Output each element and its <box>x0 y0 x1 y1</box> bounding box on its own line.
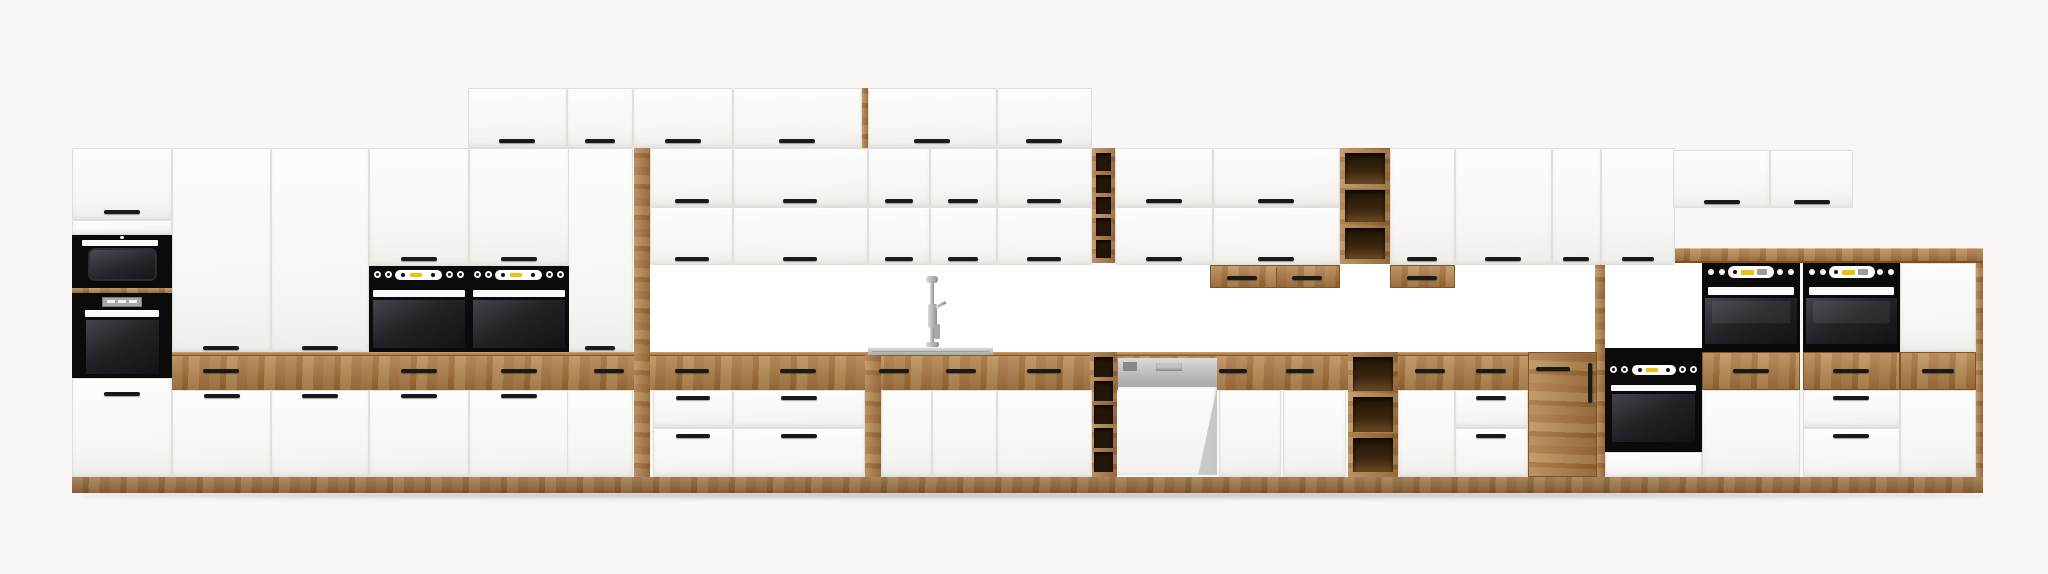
wine-rack-lower <box>1090 352 1117 477</box>
sink-base-door <box>881 390 932 477</box>
door-handle <box>1407 257 1437 261</box>
door-handle <box>585 139 615 143</box>
door-handle <box>302 346 338 350</box>
tower-filler <box>72 220 172 235</box>
door-handle <box>1794 200 1830 204</box>
microwave-latch <box>120 236 124 239</box>
oven-glass <box>372 299 466 349</box>
faucet-spray <box>934 324 940 339</box>
oven-knob <box>557 271 564 278</box>
door-handle <box>401 257 437 261</box>
clock-display <box>1757 269 1767 275</box>
faucet-neck <box>930 282 934 306</box>
oven-button <box>1777 269 1783 275</box>
base-door <box>172 390 271 477</box>
open-shelf-compartment <box>1353 397 1393 431</box>
door-handle <box>499 139 535 143</box>
oven-knob <box>1610 366 1617 373</box>
oven-display <box>102 297 142 307</box>
indicator <box>1834 270 1838 274</box>
door-handle <box>594 369 624 373</box>
plinth <box>72 477 1983 493</box>
wine-rack-cubby <box>1094 381 1113 401</box>
door-handle <box>585 346 615 350</box>
oven-glass <box>1704 297 1798 345</box>
base-door <box>369 390 469 477</box>
door-handle <box>948 257 978 261</box>
door-handle <box>1588 363 1592 403</box>
wine-rack-cubby <box>1096 197 1111 215</box>
door-handle <box>1415 369 1445 373</box>
door-handle <box>1027 257 1061 261</box>
sink-base-door <box>932 390 997 477</box>
door-handle <box>885 257 913 261</box>
door-handle <box>302 394 338 398</box>
open-shelf-compartment <box>1345 153 1385 184</box>
door-handle <box>1733 369 1769 373</box>
door-handle <box>1622 257 1654 261</box>
wine-rack-upper <box>1092 148 1115 263</box>
display-segment <box>118 300 126 303</box>
indicator <box>401 273 405 277</box>
door-handle <box>781 434 817 438</box>
open-shelf-compartment <box>1345 228 1385 259</box>
oven-glass <box>472 299 566 349</box>
door-handle <box>1476 396 1506 400</box>
wine-rack-cubby <box>1096 153 1111 171</box>
door-handle <box>1476 434 1506 438</box>
oven-control-display <box>1829 266 1875 278</box>
open-shelf-compartment <box>1353 357 1393 391</box>
dishwasher-display <box>1123 362 1137 371</box>
glass-reflection <box>1712 301 1790 323</box>
microwave-window <box>88 248 157 281</box>
door-handle <box>879 369 909 373</box>
wall-tall-door <box>1552 148 1601 265</box>
door-handle <box>501 394 537 398</box>
tall-pantry-door <box>567 148 633 352</box>
indicator <box>501 273 505 277</box>
clock-display <box>1858 269 1868 275</box>
tall-pantry-door <box>271 148 369 352</box>
oven-knob <box>374 271 381 278</box>
raised-built-in-oven-left <box>1702 263 1800 352</box>
filler-front <box>1900 263 1976 352</box>
raised-niche-back <box>1605 263 1702 348</box>
drawer-gap <box>1276 267 1277 288</box>
timer-display <box>1741 270 1754 275</box>
door-handle <box>675 369 709 373</box>
built-under-oven <box>1605 348 1702 477</box>
base-door <box>1219 390 1281 477</box>
floor-shadow <box>78 492 1986 498</box>
wall-tall-door <box>1455 148 1552 265</box>
door-handle <box>1833 396 1869 400</box>
oven-lower-filler <box>1605 452 1702 477</box>
door-handle <box>1027 199 1061 203</box>
kitchen-faucet <box>922 276 946 347</box>
side-panel-right <box>1976 263 1983 477</box>
oven-knob <box>457 271 464 278</box>
built-in-oven-right <box>469 266 569 352</box>
door-handle <box>665 139 701 143</box>
wall-tall-door <box>1390 148 1455 265</box>
door-handle <box>914 139 950 143</box>
base-door <box>997 390 1092 477</box>
tower-built-in-oven <box>72 293 172 378</box>
inset-sink-deck <box>868 347 993 355</box>
oven-knob <box>1679 366 1686 373</box>
wine-rack-cubby <box>1096 175 1111 193</box>
open-shelf-lower <box>1348 352 1398 477</box>
door-handle <box>885 199 913 203</box>
oven-knob <box>474 271 481 278</box>
timer-display <box>1646 368 1658 372</box>
base-door <box>567 390 633 477</box>
door-handle <box>1292 276 1322 280</box>
wine-rack-cubby <box>1094 452 1113 472</box>
wine-rack-cubby <box>1094 357 1113 377</box>
timer-display <box>1842 270 1855 275</box>
oven-control-panel <box>1605 362 1702 377</box>
oven-knob <box>546 271 553 278</box>
oven-handle-bar <box>85 310 159 317</box>
base-door <box>469 390 569 477</box>
open-shelf-upper <box>1340 148 1390 264</box>
door-handle <box>1258 199 1294 203</box>
open-shelf-compartment <box>1353 438 1393 472</box>
microwave-door-bar <box>82 240 158 246</box>
oven-top-strip <box>1605 348 1702 362</box>
door-handle <box>204 394 240 398</box>
wall-tall-door <box>1601 148 1675 265</box>
tall-pantry-door <box>172 148 271 352</box>
timer-display <box>410 273 422 277</box>
oven-handle-bar <box>1708 287 1794 295</box>
door-handle <box>1407 276 1437 280</box>
door-handle <box>780 369 816 373</box>
glass-reflection <box>1813 301 1890 323</box>
door-handle <box>1258 257 1294 261</box>
door-handle <box>1146 199 1182 203</box>
door-handle <box>501 257 537 261</box>
oven-button <box>1809 269 1815 275</box>
wine-rack-cubby <box>1096 218 1111 236</box>
oven-housing-upper-door <box>469 148 569 266</box>
oven-knob <box>446 271 453 278</box>
door-handle <box>783 199 817 203</box>
door-handle <box>1833 434 1869 438</box>
door-handle <box>501 369 537 373</box>
oven-base-strip <box>1702 345 1800 352</box>
base-door <box>1283 390 1346 477</box>
oven-button <box>1888 269 1894 275</box>
door-handle <box>104 210 140 214</box>
door-handle <box>1704 200 1740 204</box>
kitchen-product-render <box>0 0 2048 574</box>
indicator <box>1638 368 1642 372</box>
sink-basin-line <box>872 351 989 352</box>
base-door <box>1398 390 1455 477</box>
door-handle <box>676 434 710 438</box>
base-door <box>1702 390 1800 477</box>
oven-button <box>1708 269 1714 275</box>
indicator <box>431 273 435 277</box>
display-segment <box>107 300 115 303</box>
door-handle <box>1219 369 1247 373</box>
door-handle <box>401 369 437 373</box>
door-handle <box>1563 257 1589 261</box>
door-handle <box>203 369 239 373</box>
dishwasher-control-band <box>1118 358 1217 387</box>
open-shelf-compartment <box>1345 190 1385 221</box>
oven-control-display <box>495 270 542 280</box>
door-handle <box>401 394 437 398</box>
oven-glass <box>1611 393 1696 443</box>
door-handle <box>946 369 976 373</box>
dishwasher-recessed-handle <box>1156 363 1182 371</box>
oven-knob <box>385 271 392 278</box>
oven-handle-bar <box>1611 385 1696 391</box>
faucet-lever <box>935 301 946 309</box>
door-handle <box>104 392 140 396</box>
oven-button <box>1788 269 1794 275</box>
door-handle <box>1286 369 1314 373</box>
oven-button <box>1877 269 1883 275</box>
oven-knob <box>1621 366 1628 373</box>
door-handle <box>781 396 817 400</box>
oven-knob <box>485 271 492 278</box>
door-handle <box>676 396 710 400</box>
faucet-base <box>926 342 939 347</box>
door-handle <box>948 199 978 203</box>
oven-handle-bar <box>373 290 465 297</box>
door-handle <box>1026 139 1062 143</box>
oven-button <box>1719 269 1725 275</box>
wine-rack-cubby <box>1096 240 1111 258</box>
door-handle <box>675 257 709 261</box>
door-handle <box>779 139 815 143</box>
dishwasher-semi-integrated <box>1118 358 1217 475</box>
door-handle <box>203 346 239 350</box>
oven-handle-bar <box>473 290 565 297</box>
indicator <box>1733 270 1737 274</box>
door-handle <box>1146 257 1182 261</box>
wine-rack-cubby <box>1094 405 1113 425</box>
door-handle <box>1476 369 1506 373</box>
door-handle <box>1485 257 1521 261</box>
indicator <box>1666 368 1670 372</box>
oven-control-display <box>395 270 442 280</box>
wine-rack-cubby <box>1094 428 1113 448</box>
indicator <box>531 273 535 277</box>
oven-control-display <box>1728 266 1774 278</box>
door-handle <box>1027 369 1061 373</box>
door-handle <box>783 257 817 261</box>
base-door <box>271 390 369 477</box>
door-handle <box>1922 369 1954 373</box>
door-handle <box>1227 276 1257 280</box>
oven-glass <box>85 319 160 375</box>
built-in-microwave <box>72 235 172 288</box>
door-handle <box>1536 367 1570 371</box>
base-door <box>1900 390 1976 477</box>
oven-control-display <box>1632 365 1676 375</box>
oven-base-strip <box>1803 345 1900 352</box>
oven-handle-bar <box>1809 287 1894 295</box>
oven-knob <box>1690 366 1697 373</box>
door-handle <box>1833 369 1869 373</box>
oak-side-filler <box>634 148 650 477</box>
oven-housing-upper-door <box>369 148 469 266</box>
door-handle <box>675 199 709 203</box>
oven-button <box>1820 269 1826 275</box>
raised-built-in-oven-right <box>1803 263 1900 352</box>
display-segment <box>129 300 137 303</box>
built-in-oven-left <box>369 266 469 352</box>
timer-display <box>510 273 522 277</box>
oven-glass <box>1805 297 1898 345</box>
